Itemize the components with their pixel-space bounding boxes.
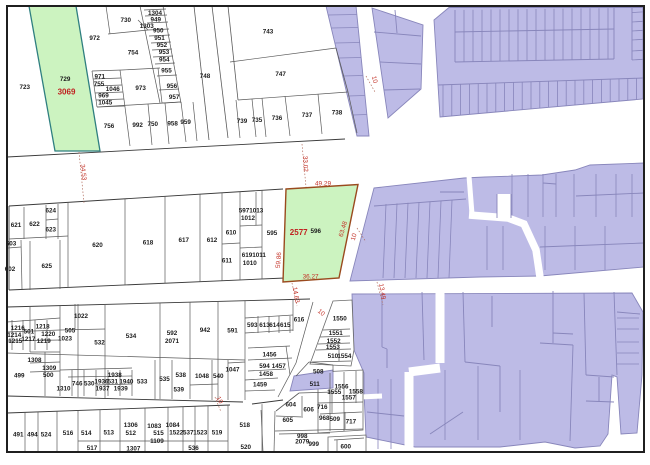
svg-text:750: 750 — [148, 121, 159, 128]
svg-text:951: 951 — [154, 35, 165, 42]
svg-text:1550: 1550 — [333, 316, 348, 323]
svg-text:600: 600 — [341, 444, 352, 451]
svg-text:3069: 3069 — [58, 87, 76, 96]
svg-text:999: 999 — [309, 441, 320, 448]
svg-text:594: 594 — [259, 363, 270, 370]
svg-text:735: 735 — [252, 117, 263, 124]
svg-text:530: 530 — [84, 381, 95, 388]
svg-text:1084: 1084 — [166, 422, 181, 429]
svg-text:516: 516 — [63, 430, 74, 437]
svg-text:500: 500 — [43, 372, 54, 379]
svg-text:514: 514 — [81, 430, 92, 437]
svg-text:1306: 1306 — [124, 422, 139, 429]
svg-text:604: 604 — [286, 402, 297, 409]
svg-text:621: 621 — [11, 222, 22, 229]
svg-text:532: 532 — [94, 339, 105, 346]
svg-text:49.29: 49.29 — [315, 181, 331, 188]
svg-text:1522: 1522 — [169, 429, 184, 436]
svg-text:539: 539 — [173, 387, 184, 394]
svg-text:620: 620 — [92, 242, 103, 249]
svg-text:992: 992 — [132, 122, 143, 129]
svg-text:515: 515 — [153, 430, 164, 437]
svg-text:618: 618 — [143, 240, 154, 247]
svg-text:605: 605 — [282, 417, 293, 424]
svg-text:610: 610 — [226, 230, 237, 237]
svg-text:534: 534 — [126, 333, 137, 340]
svg-text:956: 956 — [167, 83, 178, 90]
svg-text:531: 531 — [107, 379, 118, 386]
svg-text:957: 957 — [169, 94, 180, 101]
svg-text:538: 538 — [175, 372, 186, 379]
svg-text:972: 972 — [89, 35, 100, 42]
svg-text:1217: 1217 — [21, 336, 36, 343]
svg-text:1219: 1219 — [37, 338, 52, 345]
svg-text:1023: 1023 — [58, 335, 73, 342]
svg-text:623: 623 — [46, 226, 57, 233]
svg-text:1109: 1109 — [150, 438, 164, 445]
svg-text:730: 730 — [120, 17, 131, 24]
svg-text:1012: 1012 — [241, 215, 256, 222]
svg-text:754: 754 — [128, 50, 139, 57]
svg-text:1523: 1523 — [193, 429, 208, 436]
svg-text:739: 739 — [237, 118, 248, 125]
svg-text:1553: 1553 — [326, 344, 341, 351]
svg-text:591: 591 — [227, 328, 238, 335]
svg-text:33.02: 33.02 — [301, 156, 309, 173]
svg-text:499: 499 — [14, 372, 25, 379]
svg-text:954: 954 — [159, 57, 170, 64]
svg-text:1309: 1309 — [42, 365, 57, 372]
svg-text:624: 624 — [46, 208, 57, 215]
svg-text:1456: 1456 — [262, 352, 277, 359]
svg-text:1218: 1218 — [36, 324, 51, 331]
svg-text:517: 517 — [87, 445, 98, 452]
svg-text:592: 592 — [167, 330, 178, 337]
svg-text:616: 616 — [294, 317, 305, 324]
svg-text:494: 494 — [27, 431, 38, 438]
svg-text:611: 611 — [222, 257, 233, 264]
svg-text:1022: 1022 — [74, 313, 89, 320]
svg-text:524: 524 — [41, 431, 52, 438]
svg-text:969: 969 — [98, 93, 109, 100]
svg-text:738: 738 — [332, 110, 343, 117]
svg-text:1937: 1937 — [95, 386, 110, 393]
svg-text:1047: 1047 — [225, 366, 240, 373]
svg-text:1940: 1940 — [119, 379, 134, 386]
svg-text:533: 533 — [137, 379, 148, 386]
svg-text:617: 617 — [179, 237, 190, 244]
svg-text:5971013: 5971013 — [239, 208, 264, 215]
svg-text:1551: 1551 — [329, 330, 344, 337]
svg-text:1555: 1555 — [327, 389, 342, 396]
svg-text:1048: 1048 — [195, 373, 210, 380]
svg-text:723: 723 — [20, 84, 31, 91]
svg-text:950: 950 — [153, 28, 164, 35]
svg-text:717: 717 — [346, 419, 357, 426]
svg-text:596: 596 — [310, 228, 321, 235]
svg-text:501: 501 — [24, 329, 35, 336]
svg-text:622: 622 — [29, 221, 40, 228]
svg-text:491: 491 — [13, 431, 24, 438]
svg-text:1459: 1459 — [253, 382, 268, 389]
svg-text:535: 535 — [159, 376, 170, 383]
svg-text:513: 513 — [104, 429, 115, 436]
svg-text:1010: 1010 — [243, 260, 258, 267]
svg-text:508: 508 — [313, 368, 324, 375]
svg-text:606: 606 — [303, 406, 314, 413]
svg-text:595: 595 — [267, 230, 278, 237]
svg-text:540: 540 — [213, 373, 224, 380]
svg-text:6191011: 6191011 — [242, 252, 267, 259]
svg-text:520: 520 — [241, 444, 252, 451]
svg-text:1557: 1557 — [342, 394, 357, 401]
svg-text:747: 747 — [275, 71, 286, 78]
svg-text:511: 511 — [310, 381, 321, 388]
svg-text:1303: 1303 — [140, 23, 155, 30]
svg-text:716: 716 — [317, 404, 328, 411]
svg-text:615: 615 — [280, 322, 291, 329]
svg-text:1554: 1554 — [337, 353, 352, 360]
svg-text:958: 958 — [167, 121, 178, 128]
svg-text:971: 971 — [95, 74, 106, 81]
svg-text:59.86: 59.86 — [275, 251, 283, 268]
svg-text:729: 729 — [60, 76, 71, 83]
svg-text:505: 505 — [65, 328, 76, 335]
svg-text:1457: 1457 — [272, 363, 287, 370]
svg-text:743: 743 — [263, 29, 274, 36]
svg-text:756: 756 — [104, 123, 115, 130]
svg-text:1045: 1045 — [98, 100, 113, 107]
svg-text:736: 736 — [272, 115, 283, 122]
svg-text:748: 748 — [200, 73, 211, 80]
svg-text:612: 612 — [207, 237, 218, 244]
svg-text:2071: 2071 — [165, 338, 180, 345]
svg-text:1939: 1939 — [114, 386, 129, 393]
svg-text:942: 942 — [200, 327, 211, 334]
svg-text:952: 952 — [157, 42, 168, 49]
svg-text:1215: 1215 — [8, 338, 23, 345]
svg-text:1310: 1310 — [56, 386, 71, 393]
svg-text:2577: 2577 — [290, 228, 308, 237]
svg-text:593: 593 — [247, 322, 258, 329]
svg-text:953: 953 — [159, 49, 170, 56]
svg-text:36.27: 36.27 — [303, 274, 319, 281]
svg-text:1308: 1308 — [27, 357, 42, 364]
svg-text:959: 959 — [180, 119, 191, 126]
svg-text:955: 955 — [161, 68, 172, 75]
svg-text:755: 755 — [94, 81, 105, 88]
svg-text:746: 746 — [72, 381, 83, 388]
svg-text:737: 737 — [302, 112, 313, 119]
svg-text:1458: 1458 — [259, 371, 274, 378]
svg-text:968: 968 — [319, 415, 330, 422]
svg-text:518: 518 — [240, 422, 251, 429]
svg-text:973: 973 — [135, 85, 146, 92]
svg-text:512: 512 — [125, 430, 136, 437]
svg-text:625: 625 — [41, 263, 52, 270]
svg-text:614: 614 — [269, 322, 280, 329]
svg-text:519: 519 — [212, 429, 223, 436]
svg-text:536: 536 — [188, 445, 199, 452]
svg-text:509: 509 — [329, 416, 340, 423]
